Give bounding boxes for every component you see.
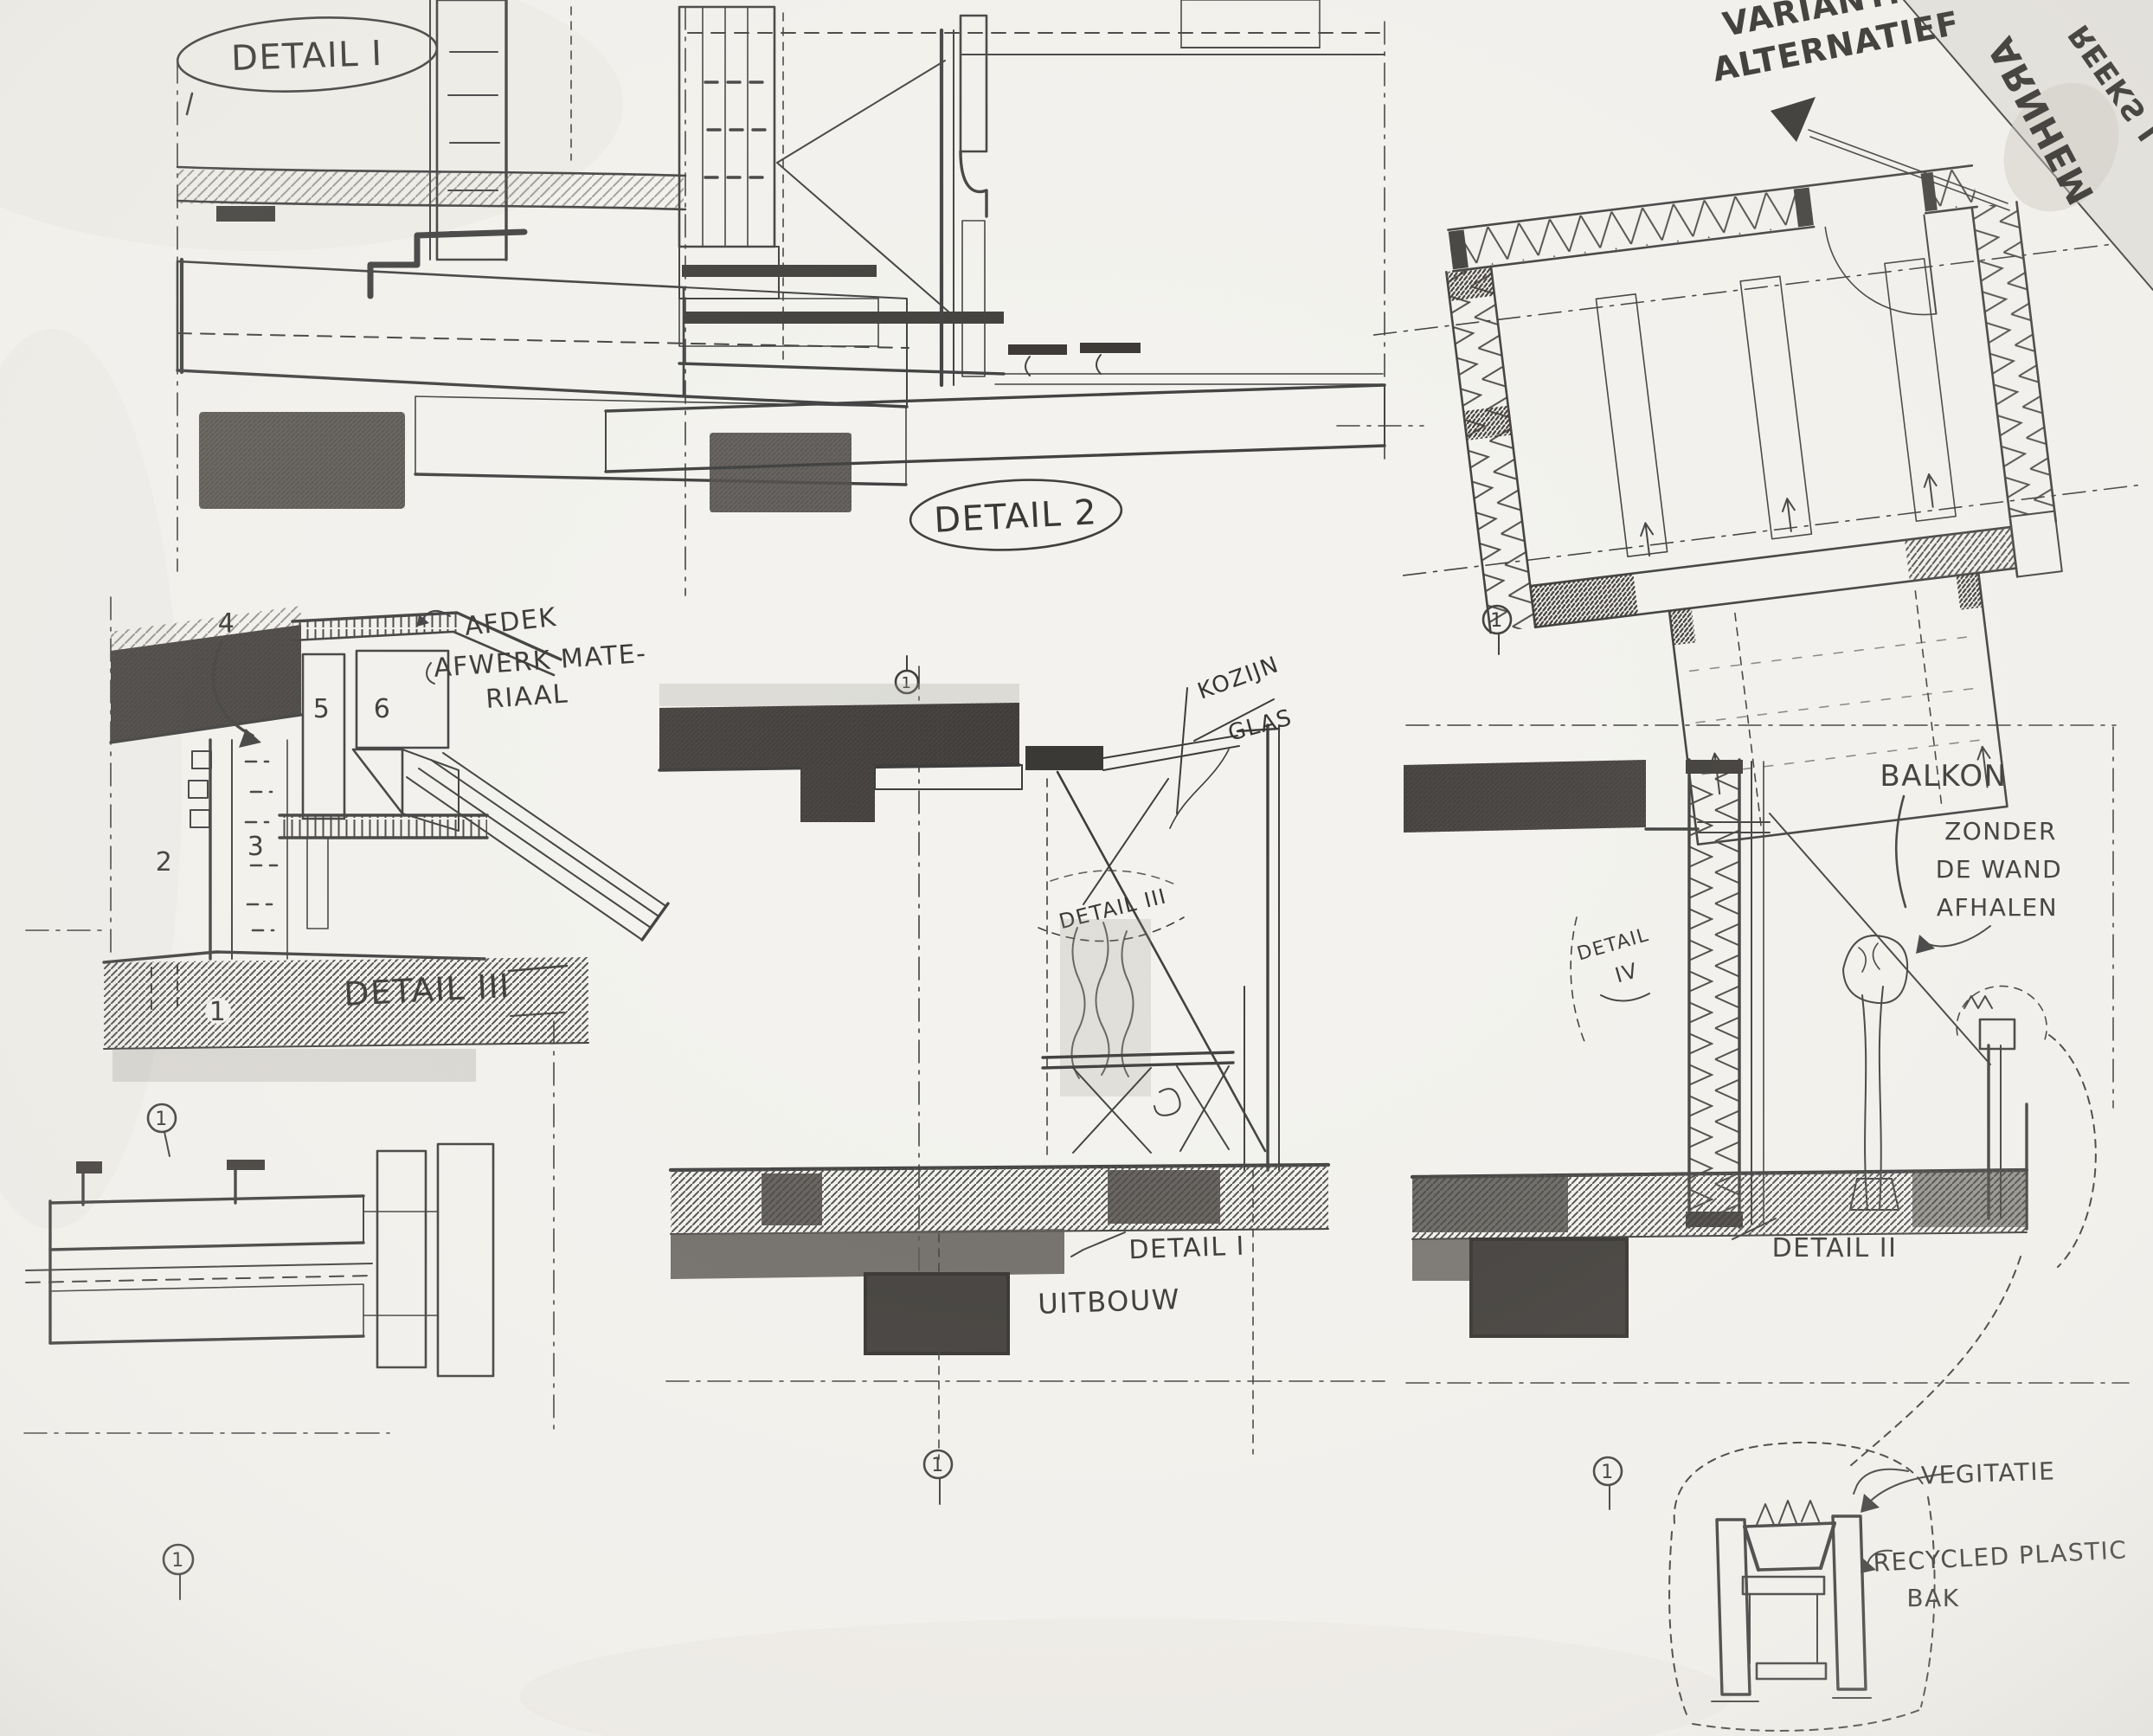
- photo-vignette: [0, 0, 2153, 1736]
- sketch-canvas: DETAIL I: [0, 0, 2153, 1736]
- sketch-sheet: DETAIL I: [0, 0, 2153, 1736]
